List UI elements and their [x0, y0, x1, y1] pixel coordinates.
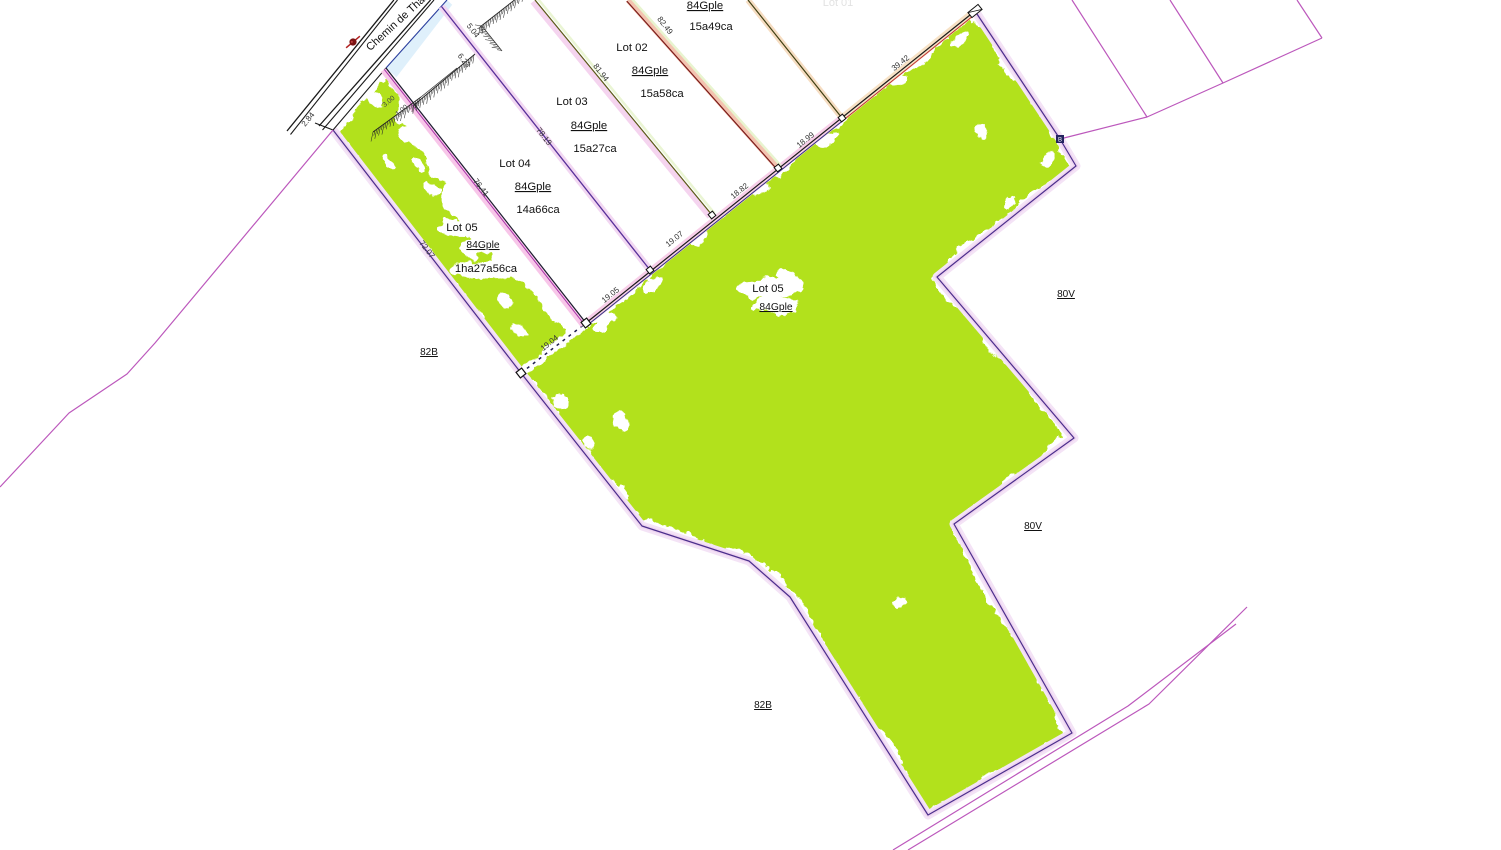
svg-text:Lot 02: Lot 02	[616, 42, 647, 54]
svg-text:80V: 80V	[1057, 289, 1075, 300]
svg-text:84Gple: 84Gple	[632, 65, 668, 77]
svg-text:1ha27a56ca: 1ha27a56ca	[455, 263, 518, 275]
svg-text:82B: 82B	[420, 347, 438, 358]
svg-text:Lot 05: Lot 05	[446, 222, 477, 234]
svg-text:B: B	[1058, 138, 1062, 144]
svg-text:14a66ca: 14a66ca	[516, 204, 560, 216]
svg-text:84Gple: 84Gple	[515, 181, 551, 193]
svg-text:Lot 01: Lot 01	[823, 0, 854, 9]
svg-text:84Gple: 84Gple	[466, 240, 499, 251]
svg-text:84Gple: 84Gple	[571, 120, 607, 132]
svg-text:15a58ca: 15a58ca	[640, 88, 684, 100]
svg-text:Lot 05: Lot 05	[752, 283, 783, 295]
svg-text:Lot 04: Lot 04	[499, 158, 530, 170]
svg-text:84Gple: 84Gple	[687, 0, 723, 12]
svg-text:84Gple: 84Gple	[759, 302, 792, 313]
svg-text:80V: 80V	[1024, 521, 1042, 532]
svg-text:15a27ca: 15a27ca	[573, 143, 617, 155]
svg-text:82B: 82B	[754, 700, 772, 711]
svg-text:15a49ca: 15a49ca	[689, 21, 733, 33]
svg-text:Lot 03: Lot 03	[556, 96, 587, 108]
